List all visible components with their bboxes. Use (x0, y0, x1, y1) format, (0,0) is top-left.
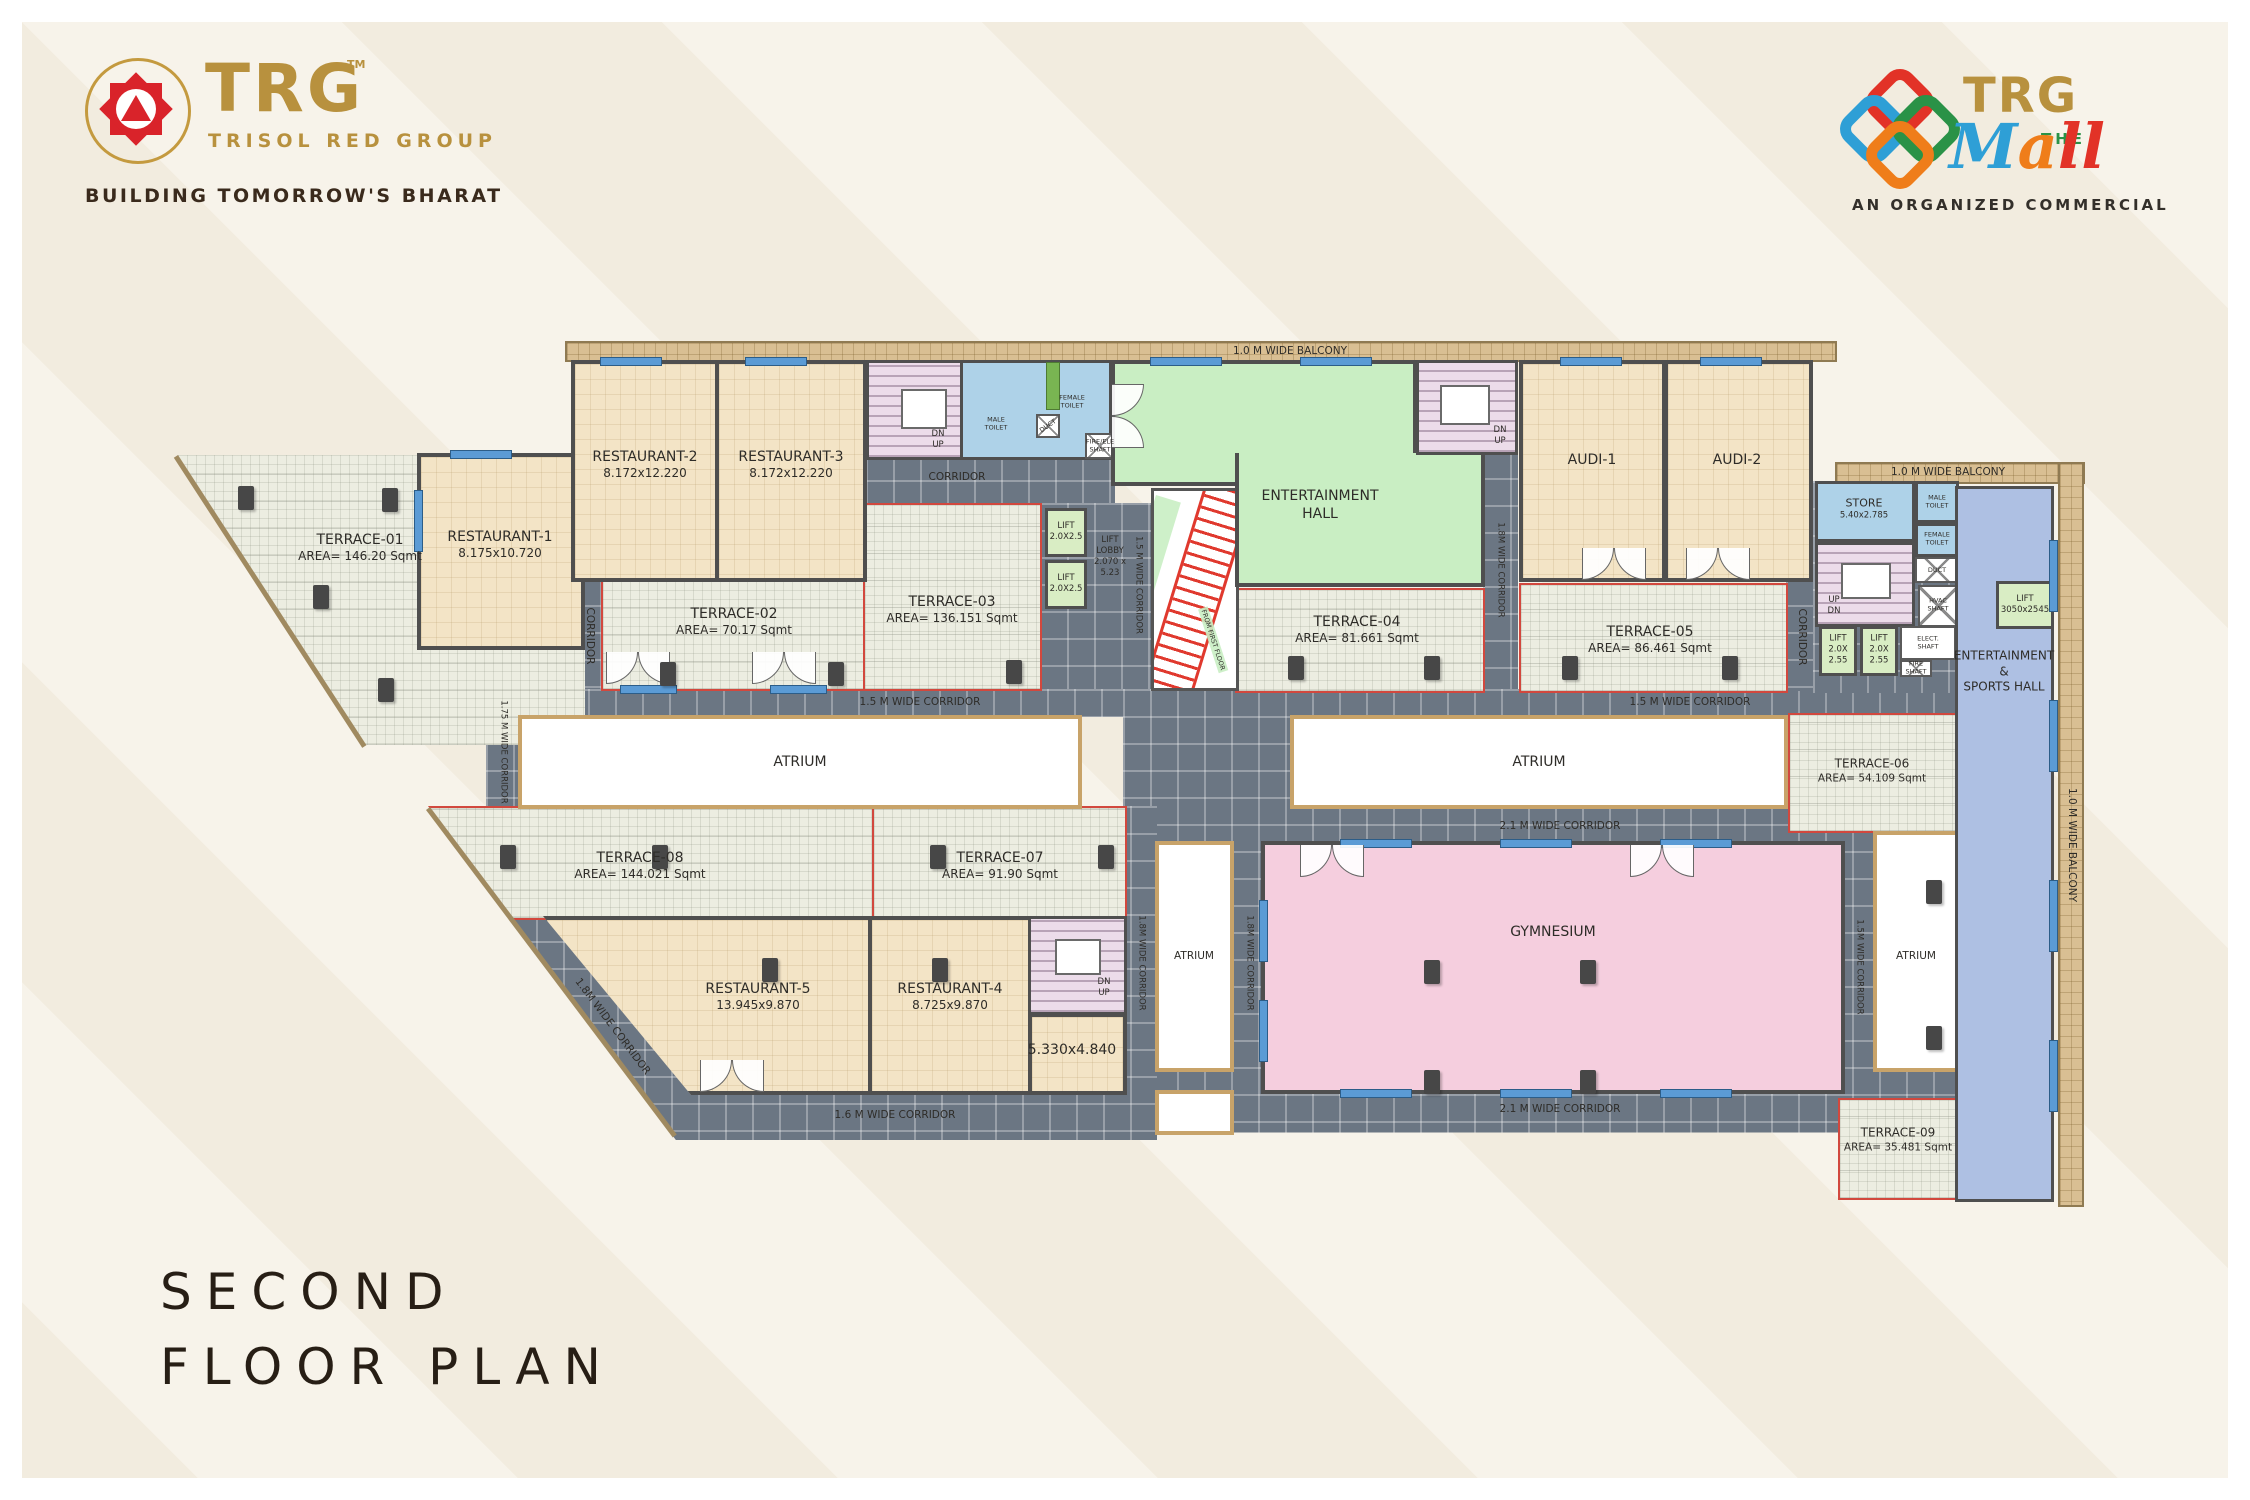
mall-logo-block: TRG THE Mall (1845, 72, 2145, 212)
restaurant-5-label: RESTAURANT-513.945x9.870 (705, 980, 810, 1014)
stair3-up-dn: UPDN (1828, 595, 1841, 617)
female-toilet-right-label: FEMALETOILET (1924, 531, 1950, 548)
atrium-middle-label: ATRIUM (1174, 950, 1214, 964)
terrace-05-label: TERRACE-05AREA= 86.461 Sqmt (1588, 623, 1712, 657)
corridor-main-right-label: 1.5 M WIDE CORRIDOR (1630, 696, 1751, 710)
balcony-right-top-label: 1.0 M WIDE BALCONY (1891, 466, 2005, 480)
corridor-15v-label: 1.5 M WIDE CORRIDOR (1132, 536, 1143, 634)
window (600, 357, 662, 366)
terrace-02-label: TERRACE-02AREA= 70.17 Sqmt (676, 605, 792, 639)
audi-2-label: AUDI-2 (1713, 451, 1762, 469)
window (1500, 1089, 1572, 1098)
mall-ll: ll (2058, 110, 2105, 183)
column-marker (238, 486, 254, 510)
corridor-18-bl-left-label: 1.8M WIDE CORRIDOR (1135, 915, 1146, 1010)
double-door (700, 1060, 764, 1092)
column-marker (1722, 656, 1738, 680)
column-marker (500, 845, 516, 869)
corridor-left-v-label: CORRIDOR (582, 608, 596, 665)
window (1500, 839, 1572, 848)
atrium-left-label: ATRIUM (773, 753, 826, 771)
double-door (752, 652, 816, 684)
atrium-bottom-right-label: ATRIUM (1896, 950, 1936, 964)
stair1-dn-up: DNUP (932, 429, 945, 451)
window (2049, 540, 2058, 612)
sports-hall-label: ENTERTAINMENT&SPORTS HALL (1954, 649, 2054, 696)
corridor-18-bl-right-label: 1.8M WIDE CORRIDOR (1243, 915, 1254, 1010)
terrace-07-label: TERRACE-07AREA= 91.90 Sqmt (942, 849, 1058, 883)
column-marker (1580, 1070, 1596, 1094)
window (2049, 1040, 2058, 1112)
trg-tagline: BUILDING TOMORROW'S BHARAT (85, 185, 503, 207)
column-marker (378, 678, 394, 702)
atrium-middle-lower (1155, 1090, 1234, 1135)
window (1150, 357, 1222, 366)
audi-1-label: AUDI-1 (1568, 451, 1617, 469)
window (745, 357, 807, 366)
gymnesium-room (1261, 841, 1845, 1094)
corridor-15-br-label: 1.5M WIDE CORRIDOR (1853, 919, 1864, 1014)
female-toilet-top-label: FEMALETOILET (1059, 394, 1085, 411)
mall-script: Mall (1949, 110, 2105, 183)
column-marker (382, 488, 398, 512)
column-marker (313, 585, 329, 609)
entertainment-hall-label: ENTERTAINMENTHALL (1261, 487, 1378, 523)
small-room-label: 5.330x4.840 (1028, 1041, 1116, 1059)
lift-lobby-label: LIFTLOBBY2.070 x5.23 (1094, 535, 1126, 579)
stair4-dn-up: DNUP (1098, 977, 1111, 999)
fire-ele-shaft-label: FIRE/ELESHAFT (1086, 438, 1114, 455)
trg-wordmark: TRG (205, 50, 364, 127)
mall-tagline: AN ORGANIZED COMMERCIAL (1852, 196, 2169, 214)
double-door (1300, 845, 1364, 877)
window (450, 450, 512, 459)
corridor-main-left-label: 1.5 M WIDE CORRIDOR (860, 696, 981, 710)
trg-star-emblem-icon (85, 58, 191, 164)
column-marker (1006, 660, 1022, 684)
lift-right-1-label: LIFT2.0X2.55 (1828, 633, 1847, 666)
window (1700, 357, 1762, 366)
corridor-top-label: CORRIDOR (929, 471, 986, 485)
duct-right-label: DUCT (1928, 566, 1946, 574)
hvac-shaft-label: HVACSHAFT (1927, 597, 1948, 614)
window (1259, 900, 1268, 962)
terrace-03-label: TERRACE-03AREA= 136.151 Sqmt (886, 593, 1017, 627)
column-marker (1926, 1026, 1942, 1050)
lift-small-1-label: LIFT2.0X2.5 (1050, 521, 1083, 543)
male-toilet-top-label: MALETOILET (985, 416, 1008, 433)
corridor-top (866, 453, 1115, 508)
window (1259, 1000, 1268, 1062)
window (1560, 357, 1622, 366)
page-title-line1: SECOND (160, 1255, 615, 1330)
trg-subtitle: TRISOL RED GROUP (208, 130, 497, 152)
mall-a: a (2018, 110, 2058, 183)
double-door (1630, 845, 1694, 877)
trg-tm: TM (347, 58, 365, 71)
restaurant-4-label: RESTAURANT-48.725x9.870 (897, 980, 1002, 1014)
column-marker (1288, 656, 1304, 680)
stair-landing (1055, 939, 1101, 975)
emblem-triangle (121, 95, 151, 121)
column-marker (932, 958, 948, 982)
window (1660, 1089, 1732, 1098)
restaurant-1-label: RESTAURANT-18.175x10.720 (447, 528, 552, 562)
column-marker (660, 662, 676, 686)
stair-landing (901, 389, 947, 429)
corridor-175-label: 1.75 M WIDE CORRIDOR (497, 700, 508, 803)
page-title: SECOND FLOOR PLAN (160, 1255, 615, 1405)
column-marker (1926, 880, 1942, 904)
column-marker (828, 662, 844, 686)
stair2-dn-up: DNUP (1494, 425, 1507, 447)
escalator (1151, 488, 1239, 691)
balcony-top-label: 1.0 M WIDE BALCONY (1233, 345, 1347, 359)
stair-landing (1440, 385, 1490, 425)
page-title-line2: FLOOR PLAN (160, 1330, 615, 1405)
store-label: STORE5.40x2.785 (1840, 496, 1888, 521)
restaurant-3-label: RESTAURANT-38.172x12.220 (738, 448, 843, 482)
column-marker (1580, 960, 1596, 984)
window (2049, 700, 2058, 772)
lift-small-2-label: LIFT2.0X2.5 (1050, 573, 1083, 595)
gymnesium-label: GYMNESIUM (1510, 923, 1595, 941)
male-toilet-right-label: MALETOILET (1926, 494, 1949, 511)
lift-right-2-label: LIFT2.0X2.55 (1869, 633, 1888, 666)
corridor-16-label: 1.6 M WIDE CORRIDOR (835, 1109, 956, 1123)
column-marker (1424, 1070, 1440, 1094)
corridor-21-top-label: 2.1 M WIDE CORRIDOR (1500, 820, 1621, 834)
terrace-06-label: TERRACE-06AREA= 54.109 Sqmt (1818, 756, 1926, 785)
atrium-right-label: ATRIUM (1512, 753, 1565, 771)
column-marker (1562, 656, 1578, 680)
mall-m: M (1949, 110, 2018, 183)
corridor-right-v-label: CORRIDOR (1794, 609, 1808, 666)
restaurant-2-label: RESTAURANT-28.172x12.220 (592, 448, 697, 482)
lift-big-label: LIFT3050x2545 (2001, 594, 2049, 616)
fire-shaft-label: FIRESHAFT (1905, 660, 1926, 677)
stair-landing (1841, 563, 1891, 599)
staircase-bottom (1028, 916, 1127, 1015)
corridor-18v-top-label: 1.8M WIDE CORRIDOR (1494, 522, 1505, 617)
staircase-top-left (866, 360, 964, 460)
terrace-08-label: TERRACE-08AREA= 144.021 Sqmt (574, 849, 705, 883)
terrace-01-label: TERRACE-01AREA= 146.20 Sqmt (298, 531, 422, 565)
elect-shaft-label: ELECT.SHAFT (1917, 635, 1939, 652)
window (620, 685, 677, 694)
terrace-04-label: TERRACE-04AREA= 81.661 Sqmt (1295, 613, 1419, 647)
double-door (1582, 548, 1646, 580)
column-marker (1098, 845, 1114, 869)
column-marker (762, 958, 778, 982)
column-marker (1424, 960, 1440, 984)
window (770, 685, 827, 694)
floor-plan-poster: TRG TM TRISOL RED GROUP BUILDING TOMORRO… (0, 0, 2250, 1500)
column-marker (1424, 656, 1440, 680)
double-door (1686, 548, 1750, 580)
terrace-09-label: TERRACE-09AREA= 35.481 Sqmt (1844, 1125, 1952, 1154)
balcony-right-side-label: 1.0 M WIDE BALCONY (2064, 788, 2078, 902)
corridor-21-bottom-label: 2.1 M WIDE CORRIDOR (1500, 1103, 1621, 1117)
window (2049, 880, 2058, 952)
duct-strip (1046, 362, 1060, 410)
window (1340, 1089, 1412, 1098)
double-door (1112, 384, 1144, 448)
